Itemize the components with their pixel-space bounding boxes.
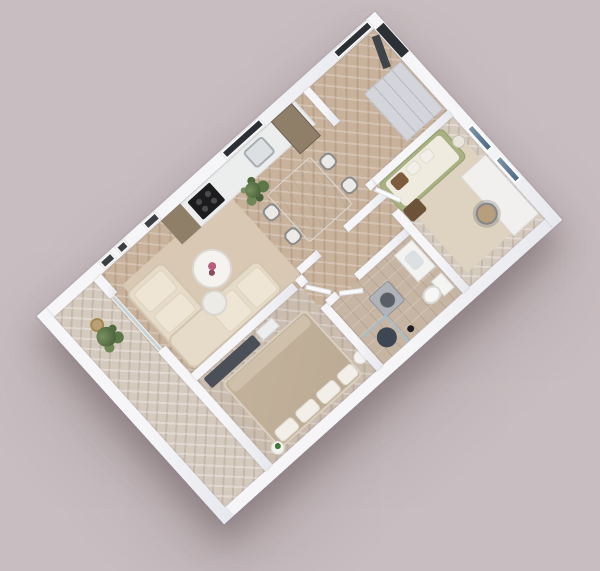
scene-background — [0, 0, 600, 571]
apartment-floor-plan — [37, 12, 562, 525]
